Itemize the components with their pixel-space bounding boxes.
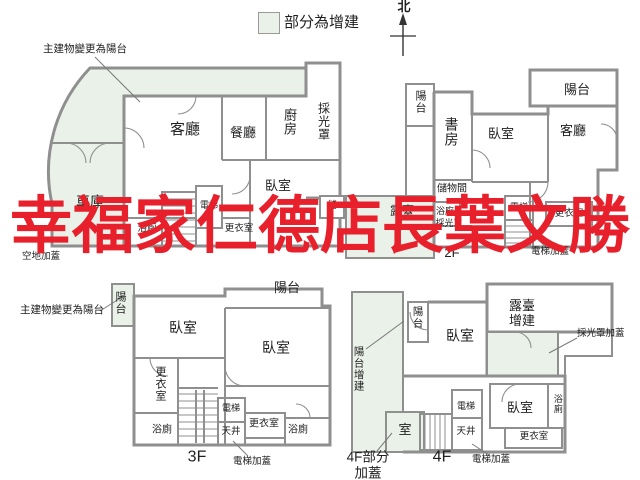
room-label-lightwell-4f: 天井 [456, 427, 475, 437]
room-label-closet-4f: 更衣室 [520, 432, 549, 442]
room-label-bedroom-bottom-4f: 臥室 [507, 401, 533, 415]
room-label-living-1f: 客廳 [170, 122, 200, 138]
note-elevator-cover-3f: 電梯加蓋 [233, 457, 271, 467]
note-balcony-addition-4f: 陽台增建 [352, 346, 363, 392]
room-label-room-4f: 室 [398, 423, 411, 437]
legend-addition-swatch [258, 12, 280, 34]
floor-label-3f: 3F [188, 448, 207, 465]
room-label-bedroom-right-3f: 臥室 [262, 340, 290, 355]
plan-3f-walls [112, 284, 330, 445]
room-label-closet-left-3f: 更衣室 [153, 366, 165, 402]
legend-addition-label: 部分為增建 [284, 15, 359, 31]
room-label-bath-right-3f: 浴廁 [288, 426, 308, 437]
room-label-elevator-4f: 電梯 [457, 402, 475, 412]
room-label-bedroom-2f: 臥室 [488, 127, 514, 141]
room-label-bath-4f: 浴廁 [552, 394, 562, 414]
note-main-building-to-balcony-3f: 主建物變更為陽台 [20, 305, 104, 316]
floor-label-4f: 4F [433, 448, 452, 465]
note-terrace-addition-4f: 露臺增建 [507, 299, 537, 329]
room-label-living-2f: 客廳 [560, 124, 586, 138]
room-label-bedroom-1f: 臥室 [265, 179, 291, 193]
room-label-dining-1f: 餐廳 [230, 126, 256, 140]
room-label-bedroom-left-3f: 臥室 [169, 320, 197, 335]
room-label-kitchen-1f: 廚房 [282, 108, 296, 136]
room-label-balcony-4f: 陽台 [411, 306, 422, 329]
note-main-building-to-balcony-1f: 主建物變更為陽台 [43, 44, 127, 55]
floor-plan-page: 部分為增建 北 幸福家仁德店長葉文勝 主建物變更為陽台 客廳 餐廳 廚房 採光罩… [0, 0, 640, 480]
watermark-text: 幸福家仁德店長葉文勝 [10, 196, 630, 258]
room-label-balcony-right-2f: 陽台 [564, 83, 590, 97]
room-label-balcony-left-3f: 陽台 [113, 291, 125, 315]
room-label-skylight-1f: 採光罩 [317, 102, 330, 141]
north-arrow-icon [390, 13, 416, 56]
room-label-balcony-top-3f: 陽台 [274, 281, 300, 295]
plan-4f-walls [352, 284, 612, 452]
note-partial-cover-4f: 4F部分加蓋 [340, 449, 396, 480]
room-label-bedroom-top-4f: 臥室 [446, 328, 474, 343]
room-label-lightwell-3f: 天井 [221, 427, 240, 437]
room-label-balcony-left-2f: 陽台 [413, 90, 425, 114]
room-label-elevator-3f: 電梯 [222, 404, 240, 414]
note-elevator-cover-4f: 電梯加蓋 [472, 455, 510, 465]
room-label-closet-right-3f: 更衣室 [249, 420, 279, 431]
north-label: 北 [397, 0, 410, 14]
note-skylight-cover-4f: 採光罩加蓋 [577, 329, 625, 339]
room-label-bath-left-3f: 浴廁 [152, 426, 172, 437]
room-label-study-2f: 書房 [443, 117, 458, 147]
